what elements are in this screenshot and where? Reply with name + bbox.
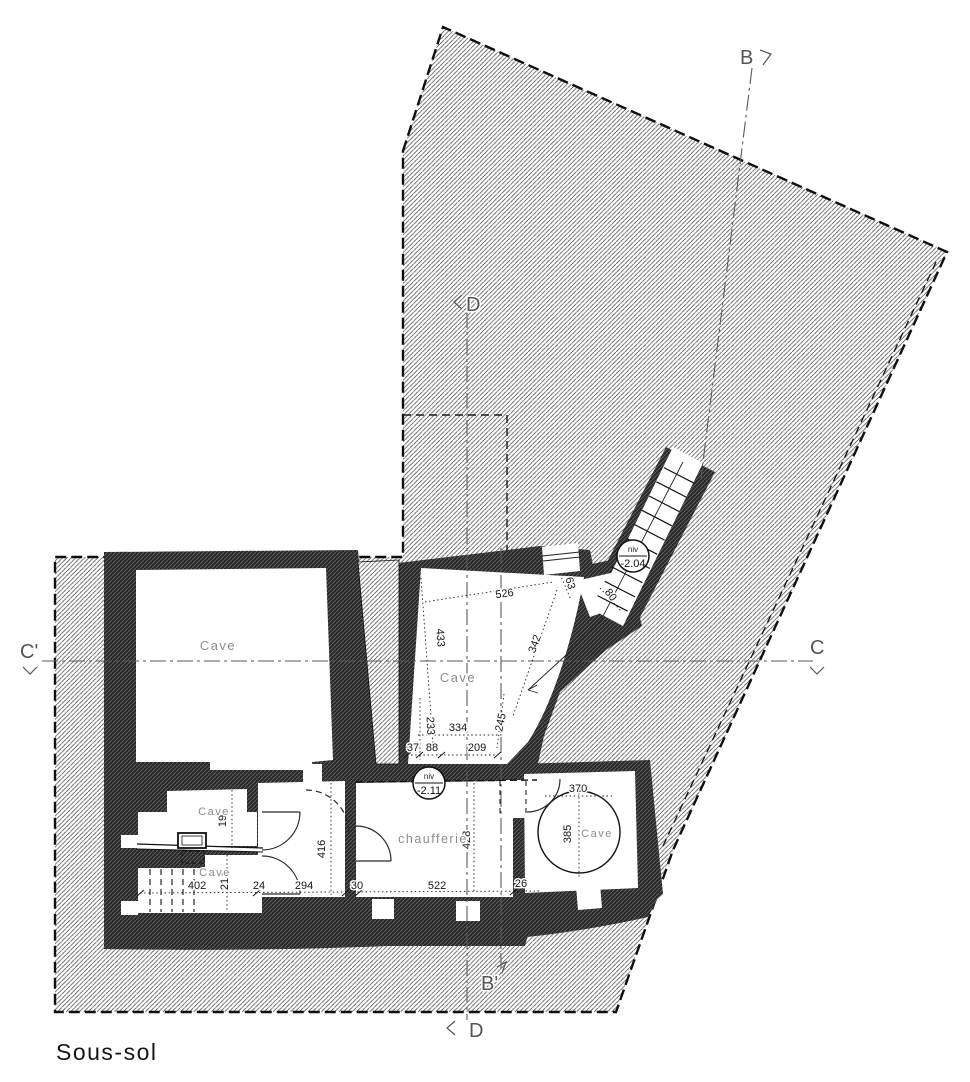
dim-30: 30 <box>351 880 363 892</box>
level-marker-stair: niv -2.04 <box>617 540 649 572</box>
wall-opening-2 <box>121 901 138 915</box>
section-label-b-bottom: B' <box>481 973 498 995</box>
section-arrow-c-left <box>23 667 37 674</box>
dim-370: 370 <box>569 783 587 795</box>
dim-433: 433 <box>433 628 446 647</box>
section-label-c-right: C <box>810 637 824 659</box>
level-marker-boiler: niv -2.11 <box>413 767 445 799</box>
dim-209: 209 <box>468 742 486 754</box>
dim-416: 416 <box>316 840 328 858</box>
svg-text:niv: niv <box>628 545 638 554</box>
section-arrow-d-bottom <box>447 1021 455 1035</box>
dim-294: 294 <box>295 880 313 892</box>
section-arrow-c-right <box>810 667 824 674</box>
section-label-d-bottom: D <box>469 1020 483 1042</box>
plan-title: Sous-sol <box>56 1039 157 1065</box>
dim-37: 37 <box>407 742 419 754</box>
foundation-vent-1 <box>372 899 394 919</box>
foundation-vent-2 <box>456 901 480 921</box>
section-label-c-left: C' <box>20 641 38 663</box>
dim-233: 233 <box>424 717 437 736</box>
room-large-cave <box>136 568 333 770</box>
label-round-cave: Cave <box>581 828 613 840</box>
dim-26: 26 <box>515 878 527 890</box>
label-boiler-room: chaufferie <box>398 832 468 846</box>
floor-plan-drawing: 526 433 342 63 80 233 334 245 37 88 209 … <box>0 0 970 1082</box>
section-label-d-top: D <box>466 294 480 316</box>
dim-385: 385 <box>562 825 574 843</box>
label-upper-small-cave: Cave <box>198 806 230 818</box>
dim-24: 24 <box>253 880 265 892</box>
niche <box>500 780 526 818</box>
svg-text:-2.04: -2.04 <box>620 558 645 570</box>
dim-402: 402 <box>188 880 206 892</box>
section-label-b-top: B <box>740 47 753 69</box>
dim-526: 526 <box>495 587 515 601</box>
svg-text:niv: niv <box>424 772 434 781</box>
label-central-cave: Cave <box>440 670 476 685</box>
label-large-cave: Cave <box>200 638 236 653</box>
svg-text:-2.11: -2.11 <box>417 785 441 797</box>
round-cave-chute <box>576 884 602 910</box>
dim-334: 334 <box>449 722 467 734</box>
dim-522: 522 <box>428 880 446 892</box>
floor-plan-page: 526 433 342 63 80 233 334 245 37 88 209 … <box>0 0 970 1082</box>
wall-opening-3 <box>303 764 322 785</box>
section-arrow-b-top <box>760 50 771 65</box>
label-lower-small-cave: Cave <box>199 867 231 879</box>
wall-opening-1 <box>121 835 138 848</box>
dim-88: 88 <box>426 742 438 754</box>
